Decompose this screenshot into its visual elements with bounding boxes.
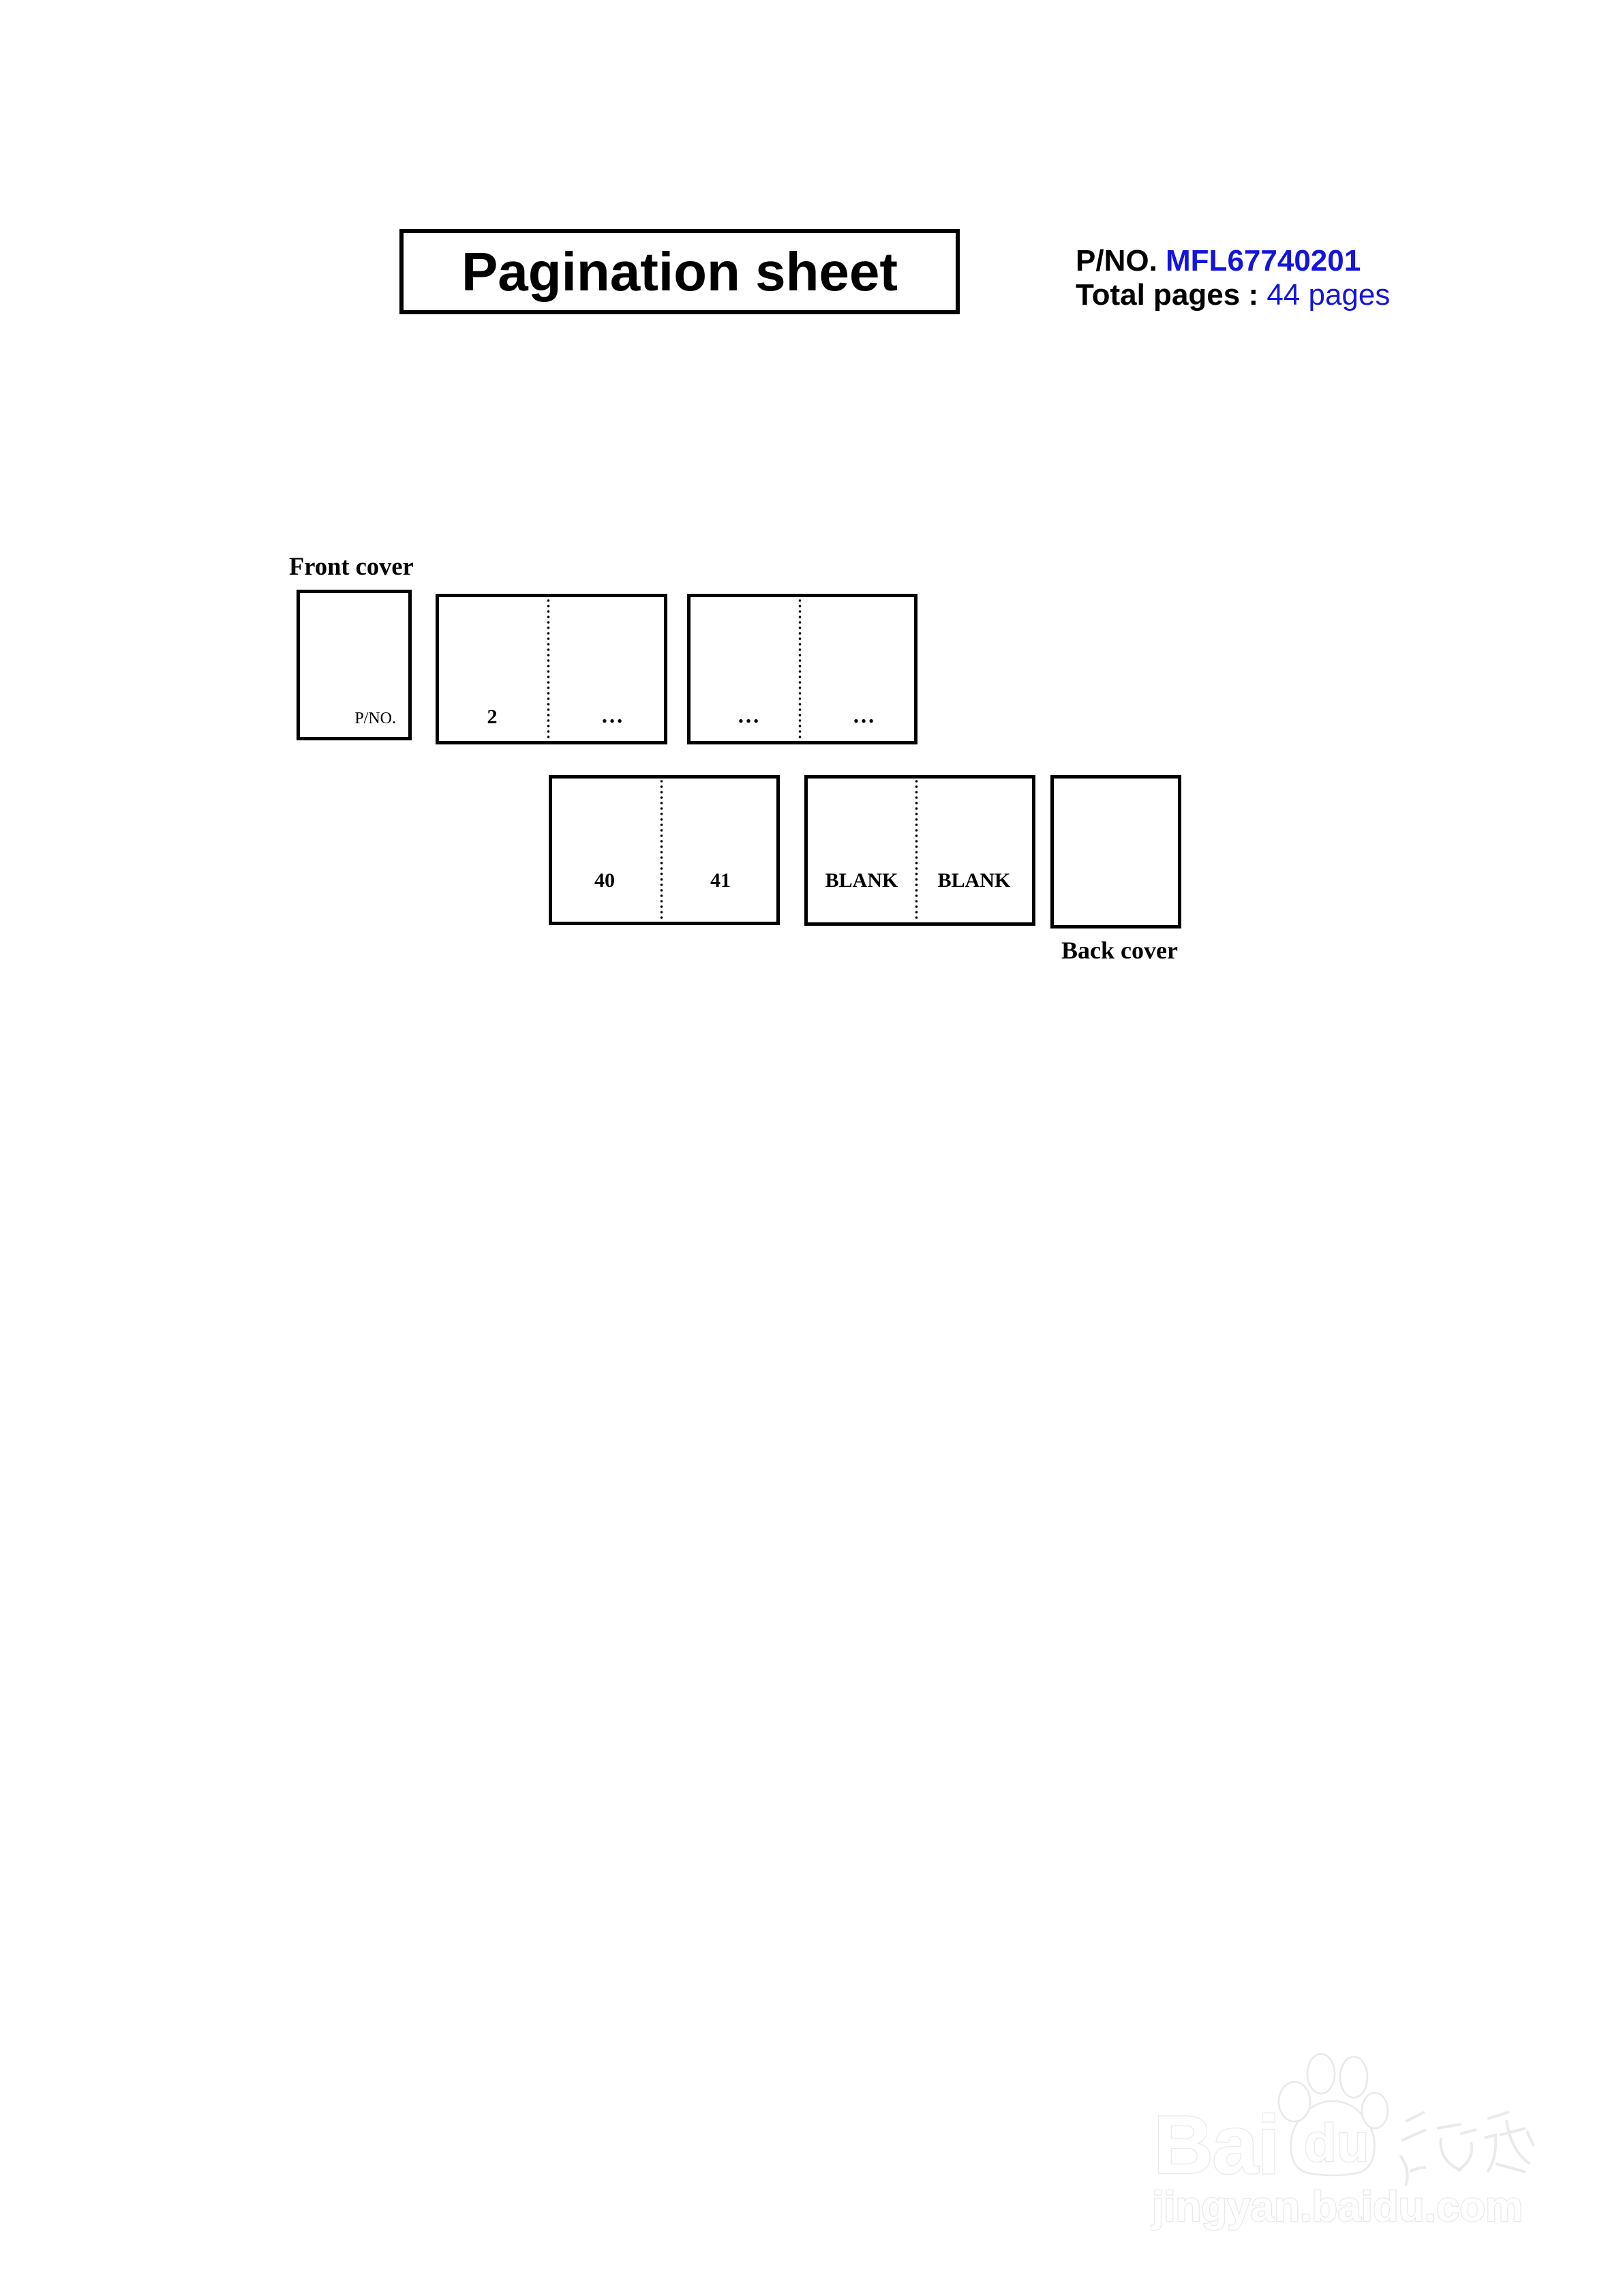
svg-text:du: du [1304, 2113, 1369, 2173]
svg-text:jingyan.baidu.com: jingyan.baidu.com [1151, 2184, 1523, 2231]
svg-text:Bai: Bai [1153, 2098, 1279, 2191]
